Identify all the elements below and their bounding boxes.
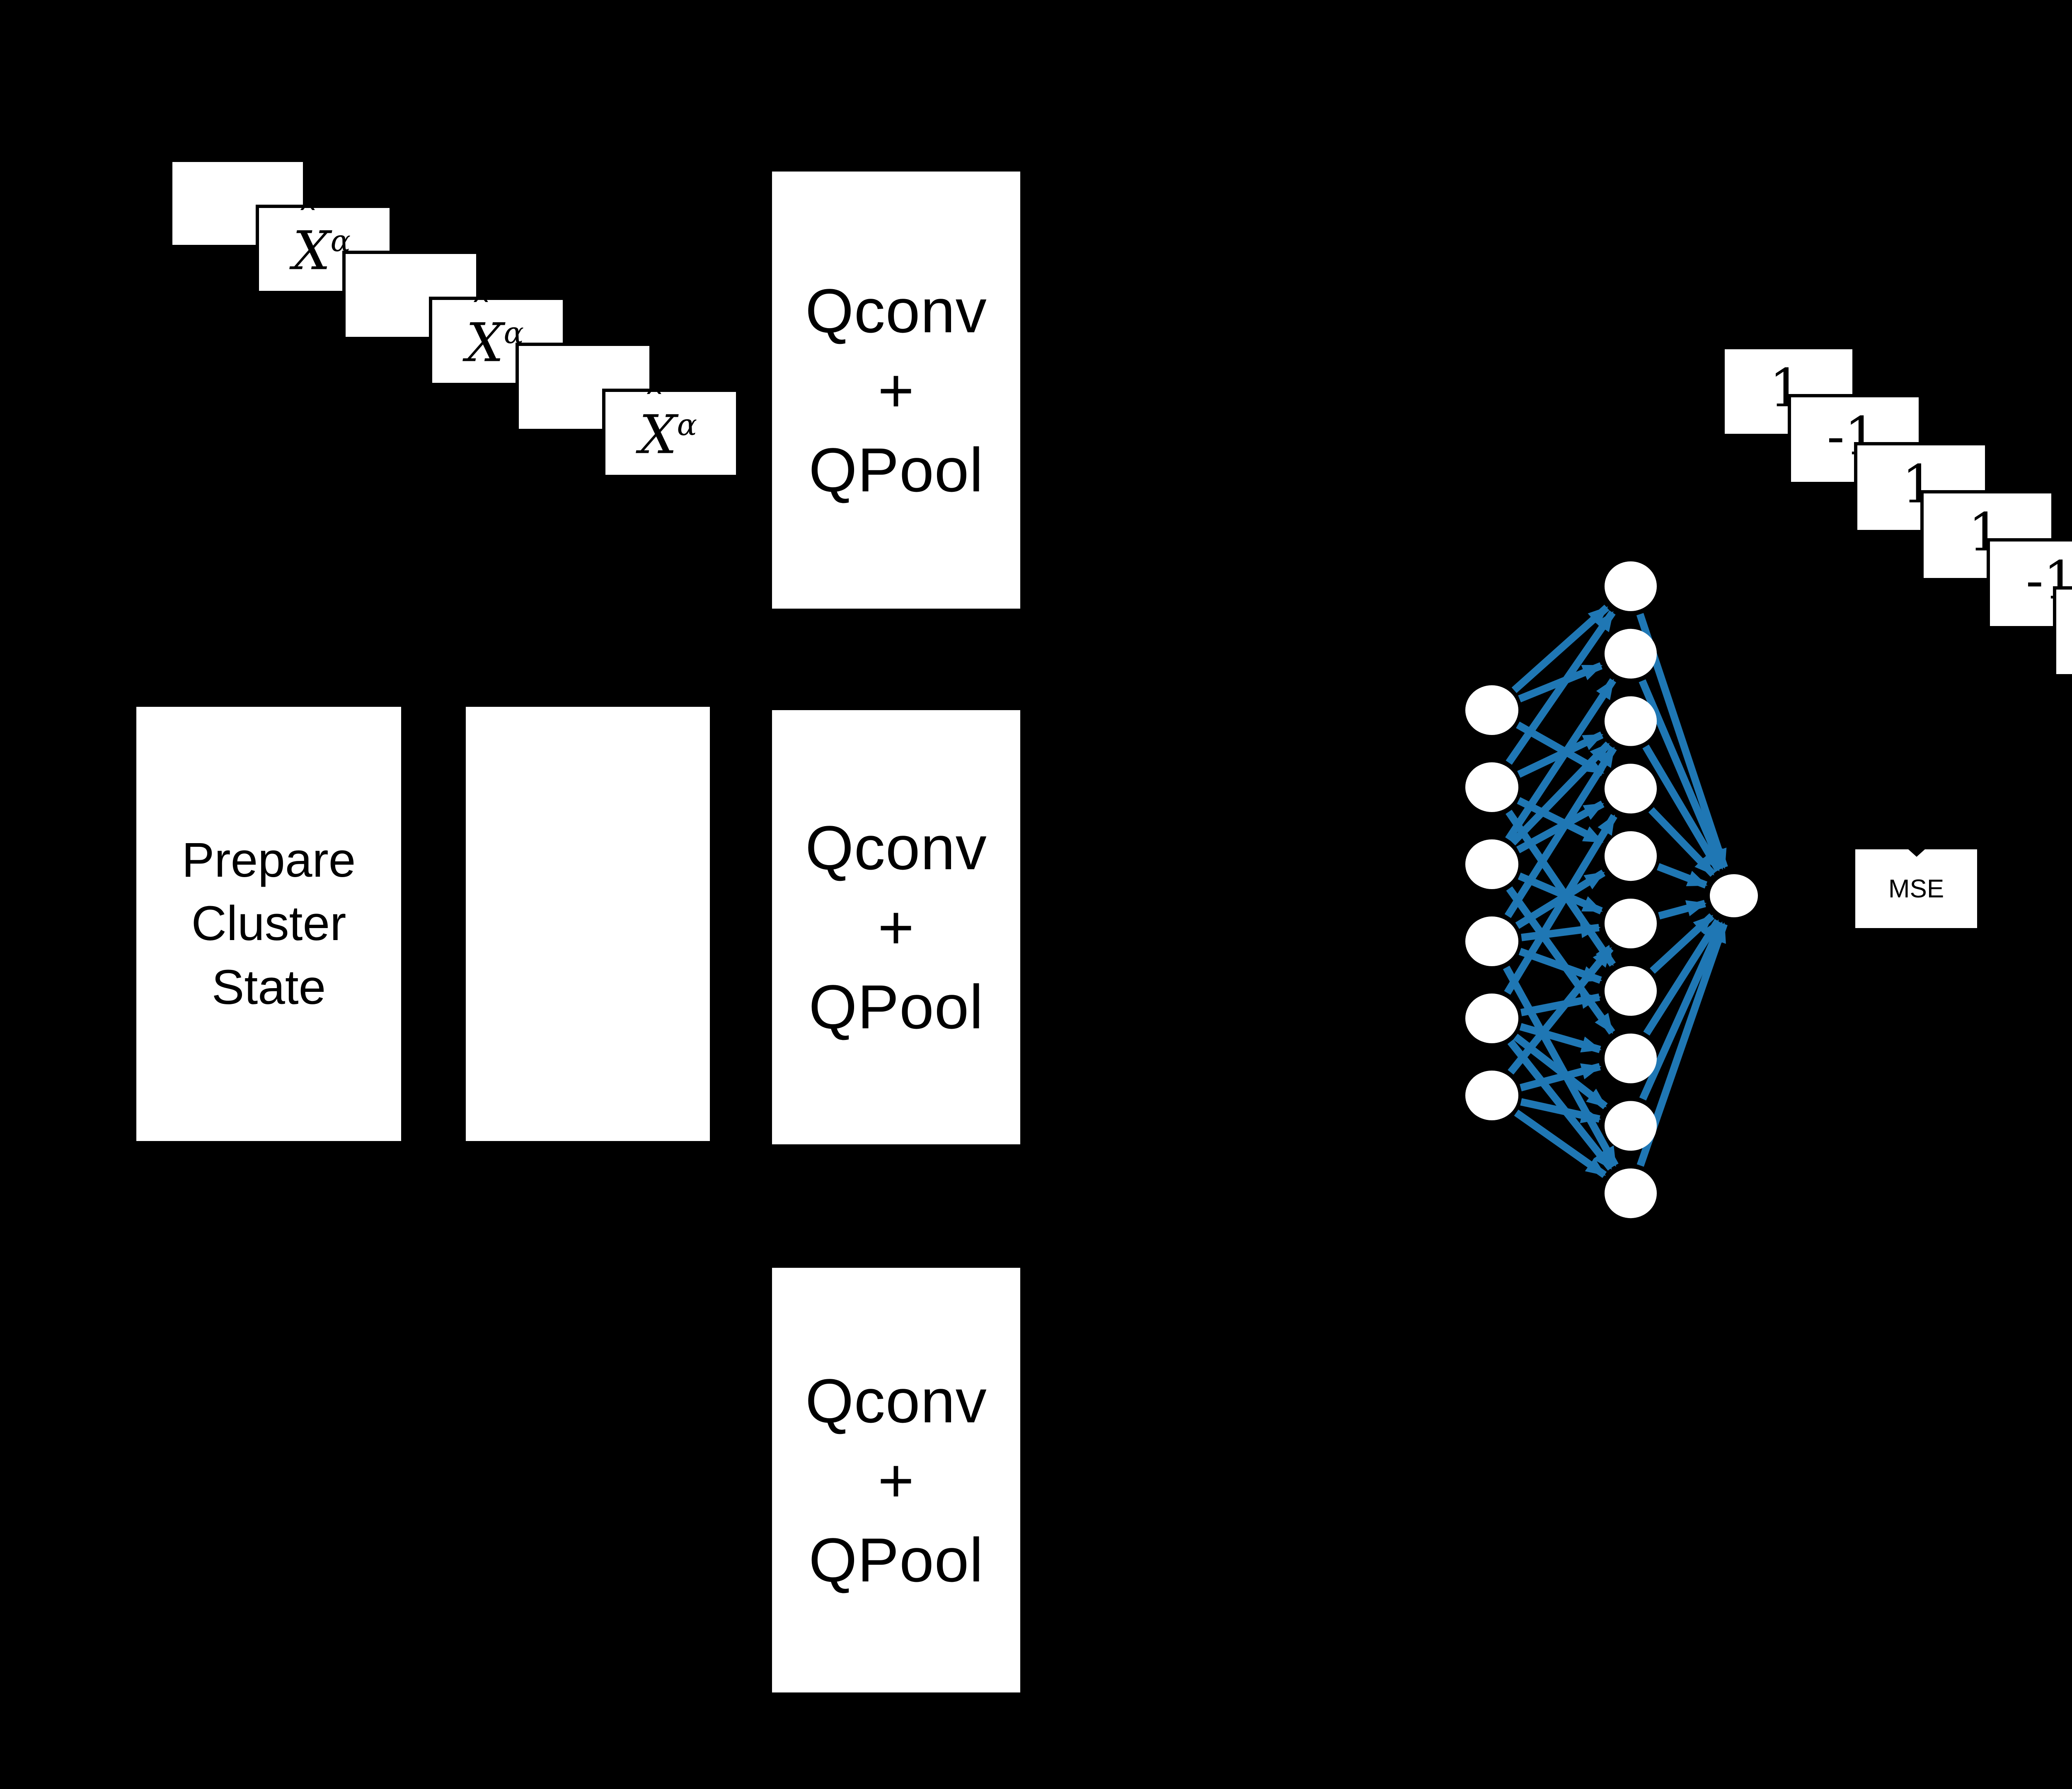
input-node <box>1465 1071 1518 1120</box>
hidden-node <box>1605 764 1657 813</box>
hidden-node <box>1605 966 1657 1016</box>
network-edge <box>1643 923 1721 1099</box>
hidden-node <box>1605 696 1657 746</box>
input-node <box>1465 994 1518 1043</box>
qconv-qpool-label: Qconv + QPool <box>805 808 987 1047</box>
network-edge <box>1521 928 1599 938</box>
input-node <box>1465 685 1518 735</box>
hidden-node <box>1605 629 1657 679</box>
output-node <box>1710 874 1758 917</box>
hidden-node <box>1605 1101 1657 1151</box>
blank-box <box>466 707 710 1141</box>
qconv-qpool-box-1: Qconv + QPool <box>772 172 1020 609</box>
hidden-node <box>1605 899 1657 948</box>
mse-label: MSE <box>1888 874 1944 904</box>
xhat-alpha-label: Xˆα <box>639 404 697 466</box>
hidden-node <box>1605 1034 1657 1083</box>
network-edge <box>1514 607 1607 690</box>
prepare-cluster-state-label: Prepare Cluster State <box>182 829 356 1019</box>
network-edge <box>1658 867 1706 885</box>
input-node <box>1465 916 1518 966</box>
hidden-node <box>1605 1168 1657 1218</box>
input-node <box>1465 762 1518 812</box>
mse-box: MSE <box>1855 849 1977 928</box>
diagram-canvas: XˆαXˆαXˆα Prepare Cluster State Qconv + … <box>0 0 2072 1789</box>
qconv-qpool-label: Qconv + QPool <box>805 1361 987 1600</box>
input-node <box>1465 839 1518 889</box>
qconv-qpool-box-2: Qconv + QPool <box>772 710 1020 1144</box>
neural-network <box>1401 534 1815 1260</box>
qconv-qpool-label: Qconv + QPool <box>805 271 987 510</box>
network-edges <box>1506 607 1724 1175</box>
input-feature-map-card: Xˆα <box>602 389 739 478</box>
qconv-qpool-box-3: Qconv + QPool <box>772 1268 1020 1692</box>
network-edge <box>1659 904 1705 916</box>
hidden-node <box>1605 831 1657 881</box>
hidden-node <box>1605 561 1657 611</box>
target-value-card: 1 <box>2053 586 2072 677</box>
arrowhead-notch <box>1908 849 1925 857</box>
prepare-cluster-state-box: Prepare Cluster State <box>136 707 401 1141</box>
